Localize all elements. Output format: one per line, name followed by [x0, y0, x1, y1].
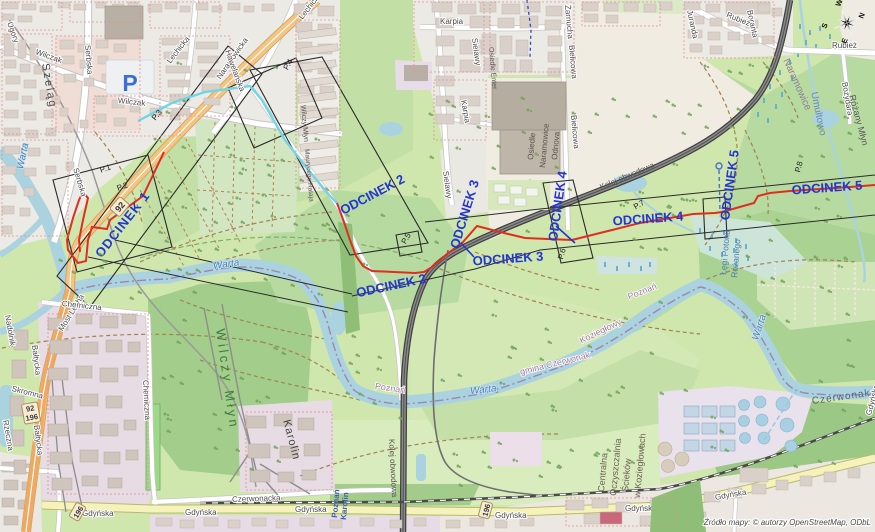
svg-text:P: P — [122, 70, 137, 96]
svg-text:Czerwonacka: Czerwonacka — [232, 493, 281, 504]
svg-text:Gdyńska: Gdyńska — [82, 509, 114, 518]
svg-text:Źródło mapy: © autorzy OpenStr: Źródło mapy: © autorzy OpenStreetMap, OD… — [703, 518, 871, 527]
svg-text:Gdyńska: Gdyńska — [495, 511, 527, 520]
svg-text:Karpia: Karpia — [440, 17, 464, 26]
svg-text:Gdyńska: Gdyńska — [295, 505, 327, 514]
svg-text:Gdyńska: Gdyńska — [185, 508, 217, 517]
